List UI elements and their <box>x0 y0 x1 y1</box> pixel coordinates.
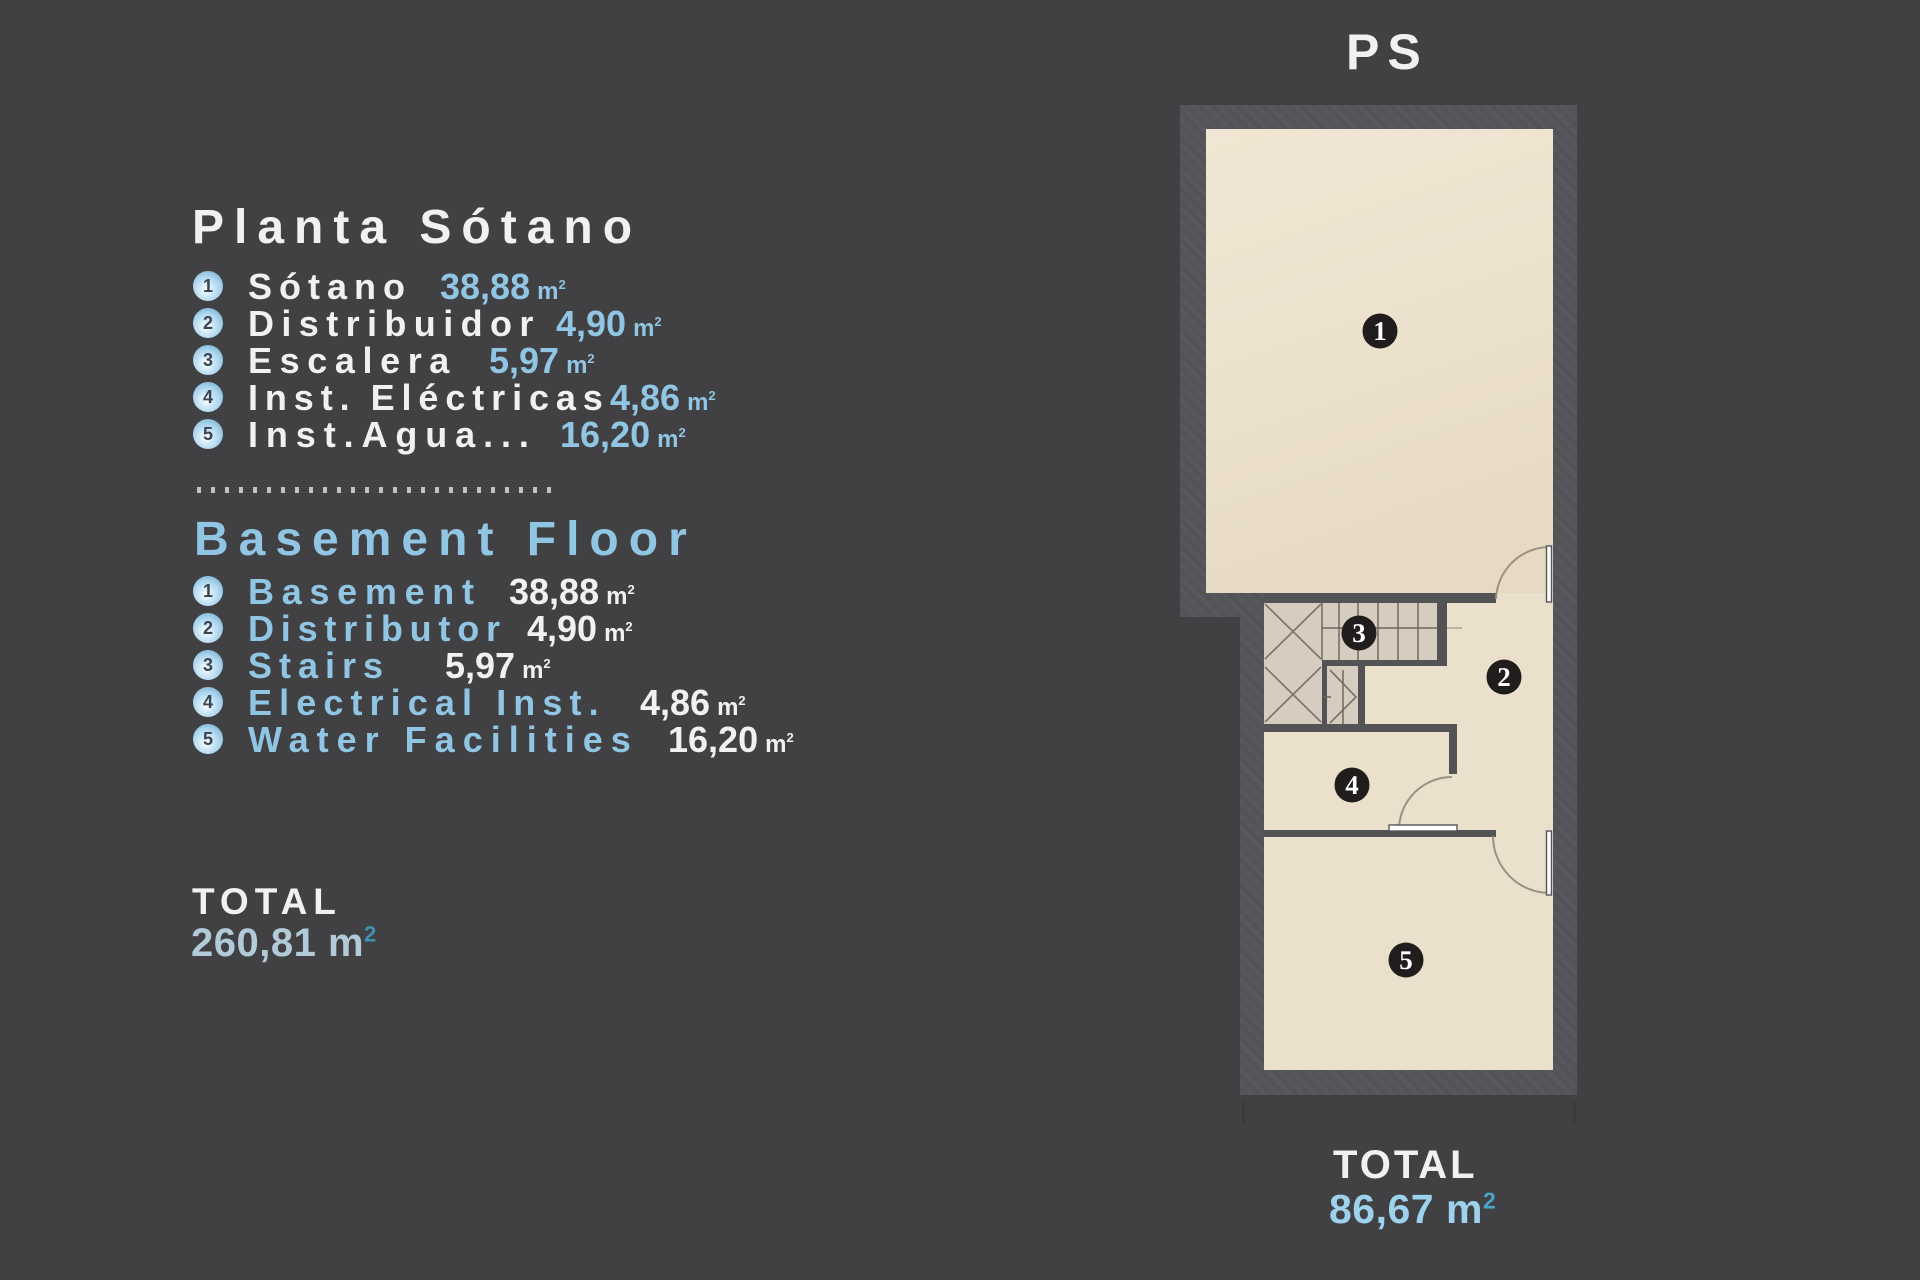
svg-text:4: 4 <box>1345 770 1359 800</box>
svg-text:5: 5 <box>1399 945 1413 975</box>
svg-text:2: 2 <box>1497 662 1511 692</box>
svg-text:3: 3 <box>1352 618 1366 648</box>
svg-text:1: 1 <box>1373 316 1387 346</box>
